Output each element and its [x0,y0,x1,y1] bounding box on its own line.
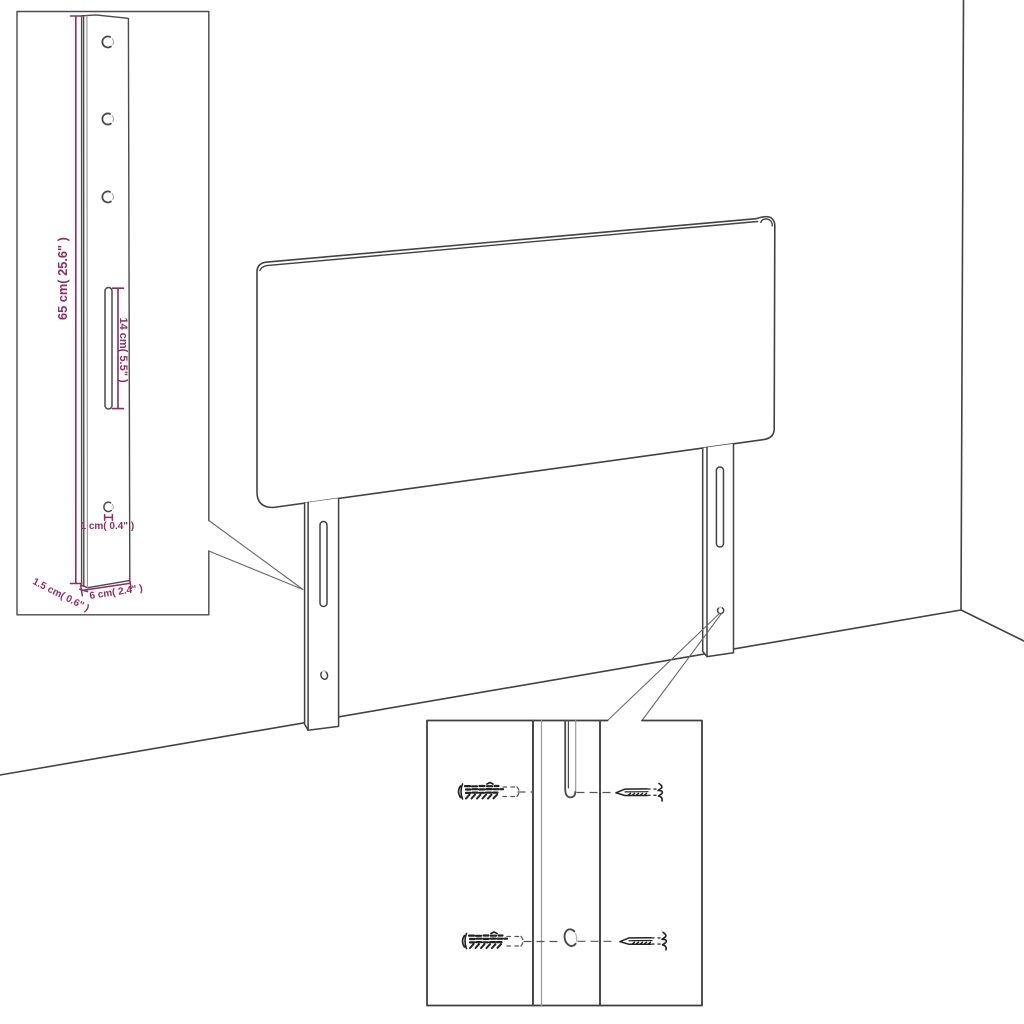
svg-text:14 cm( 5.5" ): 14 cm( 5.5" ) [117,318,129,383]
svg-text:65 cm( 25.6" ): 65 cm( 25.6" ) [55,237,70,320]
svg-text:1 cm( 0.4" ): 1 cm( 0.4" ) [81,521,135,532]
